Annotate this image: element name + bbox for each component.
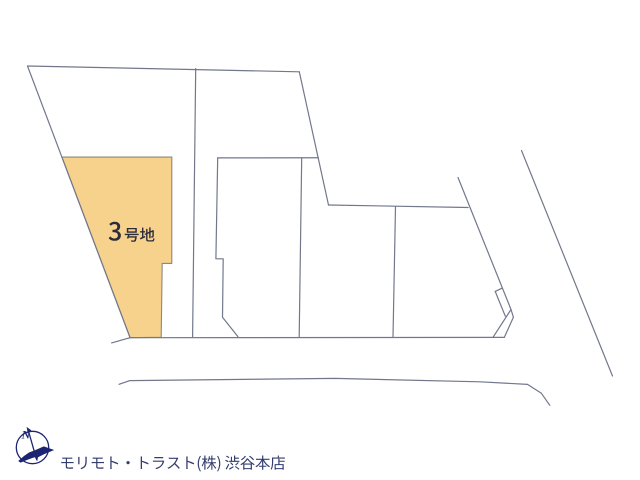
svg-text:N: N <box>21 428 32 442</box>
